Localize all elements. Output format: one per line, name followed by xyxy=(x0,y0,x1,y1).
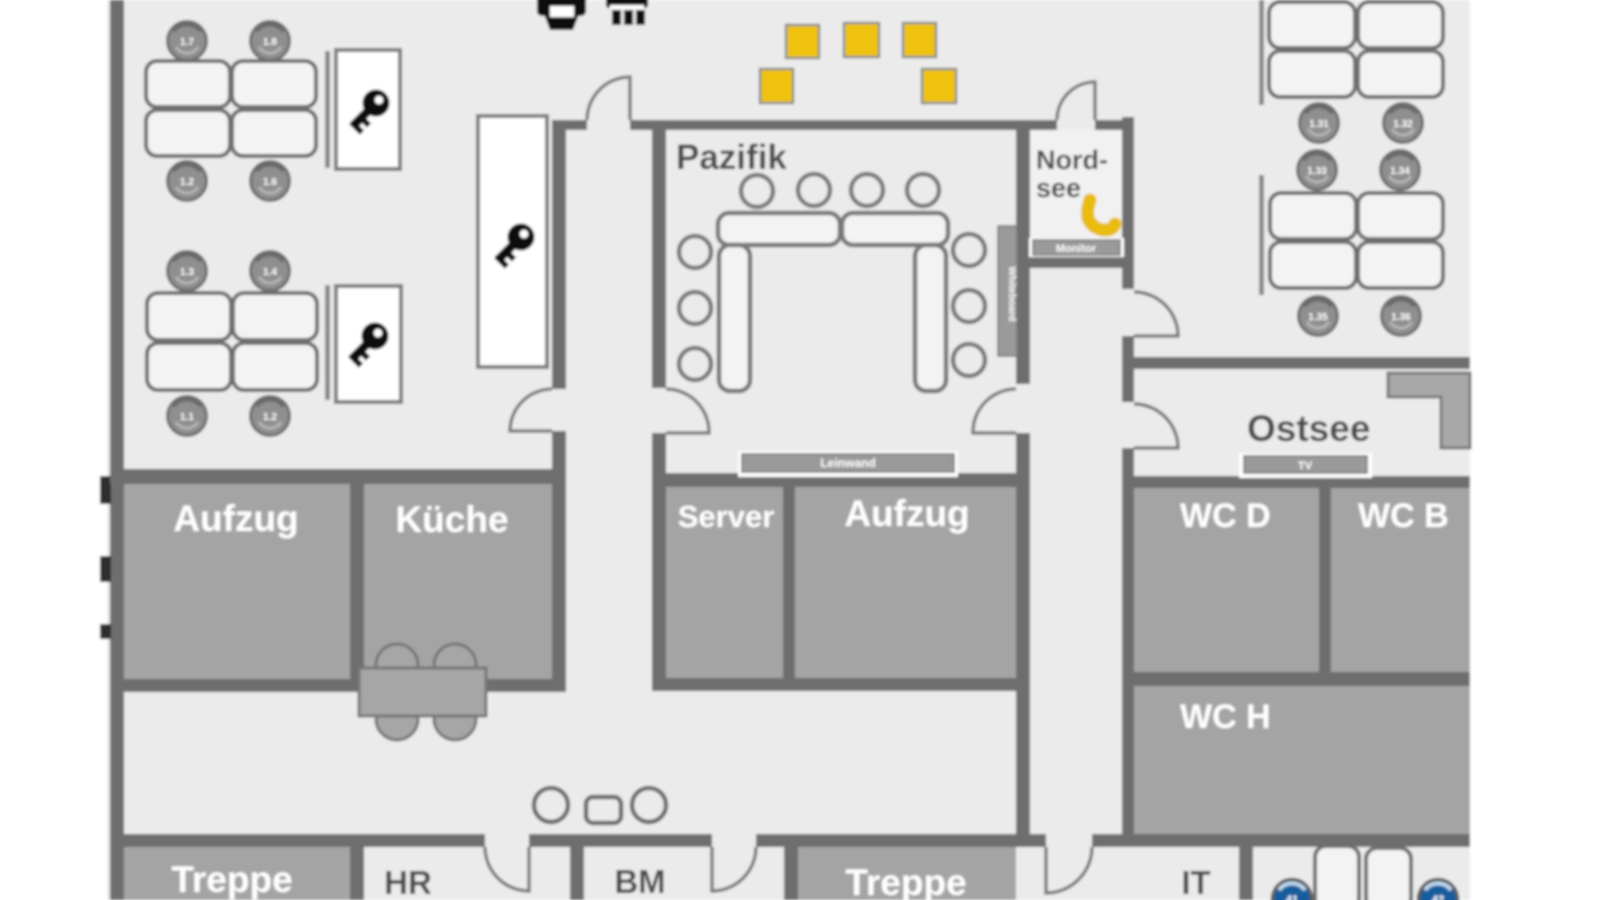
svg-text:Ostsee: Ostsee xyxy=(1247,408,1370,449)
svg-text:Whiteboard: Whiteboard xyxy=(1006,267,1017,322)
svg-text:1.8: 1.8 xyxy=(263,37,277,48)
svg-text:Leinwand: Leinwand xyxy=(820,456,875,470)
svg-text:1.2: 1.2 xyxy=(263,412,277,423)
svg-text:TV: TV xyxy=(1298,460,1313,472)
svg-text:Treppe: Treppe xyxy=(845,862,966,900)
svg-text:1.4: 1.4 xyxy=(263,267,277,278)
svg-text:Nord-: Nord- xyxy=(1036,145,1108,175)
svg-text:1.6: 1.6 xyxy=(263,177,277,188)
svg-text:1.2: 1.2 xyxy=(180,177,194,188)
svg-text:WC D: WC D xyxy=(1180,497,1271,535)
svg-text:1.33: 1.33 xyxy=(1307,166,1327,177)
svg-text:1.31: 1.31 xyxy=(1309,119,1329,130)
svg-text:1.35: 1.35 xyxy=(1308,312,1328,323)
svg-text:1.34: 1.34 xyxy=(1390,166,1410,177)
svg-text:Pazifik: Pazifik xyxy=(676,138,787,177)
svg-text:1.32: 1.32 xyxy=(1393,119,1413,130)
svg-text:Küche: Küche xyxy=(395,499,508,540)
svg-text:WC B: WC B xyxy=(1358,497,1449,535)
svg-text:see: see xyxy=(1036,173,1081,203)
svg-text:42: 42 xyxy=(1432,894,1444,900)
svg-text:1.1: 1.1 xyxy=(180,412,194,423)
svg-text:1.36: 1.36 xyxy=(1391,312,1411,323)
svg-text:Server: Server xyxy=(678,499,775,534)
svg-text:WC H: WC H xyxy=(1180,698,1271,736)
svg-text:Monitor: Monitor xyxy=(1056,243,1097,255)
svg-text:1.7: 1.7 xyxy=(180,37,194,48)
svg-text:Treppe: Treppe xyxy=(171,859,292,900)
svg-text:Aufzug: Aufzug xyxy=(844,493,969,534)
svg-text:41: 41 xyxy=(1286,894,1298,900)
svg-text:Aufzug: Aufzug xyxy=(173,498,298,539)
svg-text:BM: BM xyxy=(614,863,665,900)
svg-text:IT: IT xyxy=(1181,864,1210,900)
svg-text:HR: HR xyxy=(384,864,432,900)
svg-text:1.3: 1.3 xyxy=(180,267,194,278)
